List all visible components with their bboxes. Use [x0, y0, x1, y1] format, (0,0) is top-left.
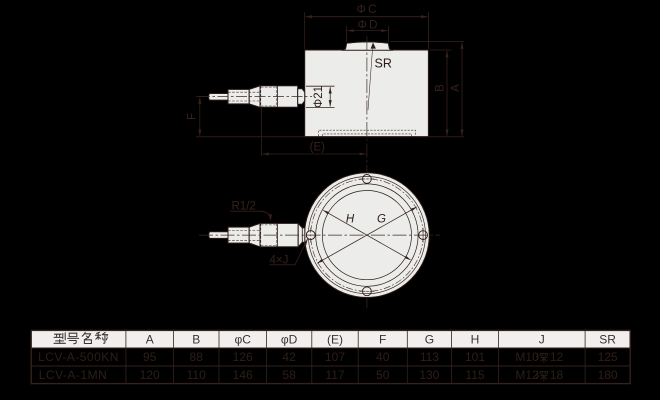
- svg-text:42: 42: [282, 350, 296, 364]
- svg-text:SR: SR: [599, 333, 616, 347]
- svg-text:M10: M10: [515, 350, 539, 364]
- svg-text:M12: M12: [515, 368, 539, 382]
- svg-text:Φ C: Φ C: [357, 4, 377, 16]
- svg-text:H: H: [346, 214, 355, 226]
- svg-text:B: B: [435, 84, 447, 92]
- svg-text:101: 101: [465, 350, 485, 364]
- svg-text:Φ D: Φ D: [358, 19, 378, 31]
- svg-text:A: A: [450, 84, 462, 92]
- svg-text:φC: φC: [234, 333, 251, 347]
- svg-text:12: 12: [550, 350, 564, 364]
- svg-text:107: 107: [325, 350, 345, 364]
- svg-text:H: H: [471, 333, 480, 347]
- svg-text:110: 110: [187, 368, 206, 382]
- svg-text:G: G: [425, 333, 434, 347]
- svg-text:φD: φD: [281, 333, 298, 347]
- svg-text:117: 117: [325, 368, 344, 382]
- svg-text:58: 58: [282, 368, 296, 382]
- svg-text:115: 115: [465, 368, 484, 382]
- svg-text:LCV-A-500KN: LCV-A-500KN: [38, 350, 119, 364]
- svg-text:A: A: [146, 333, 154, 347]
- svg-text:50: 50: [376, 368, 390, 382]
- svg-text:G: G: [377, 214, 386, 226]
- svg-text:130: 130: [419, 368, 439, 382]
- svg-text:LCV-A-1MN: LCV-A-1MN: [39, 368, 108, 382]
- svg-text:146: 146: [233, 368, 253, 382]
- svg-text:126: 126: [233, 350, 253, 364]
- svg-text:(E): (E): [327, 333, 343, 347]
- svg-text:(E): (E): [310, 142, 326, 154]
- svg-text:120: 120: [140, 368, 160, 382]
- svg-text:J: J: [539, 333, 545, 347]
- svg-text:18: 18: [550, 368, 564, 382]
- svg-text:R1/2: R1/2: [232, 200, 256, 212]
- svg-text:40: 40: [376, 350, 390, 364]
- svg-text:113: 113: [420, 350, 439, 364]
- svg-text:180: 180: [598, 368, 618, 382]
- svg-text:F: F: [379, 333, 386, 347]
- svg-text:88: 88: [190, 350, 204, 364]
- svg-text:Φ21: Φ21: [313, 86, 325, 108]
- svg-text:95: 95: [143, 350, 157, 364]
- svg-text:125: 125: [598, 350, 618, 364]
- svg-text:SR: SR: [375, 57, 392, 71]
- svg-text:F: F: [187, 113, 199, 120]
- svg-text:B: B: [192, 333, 200, 347]
